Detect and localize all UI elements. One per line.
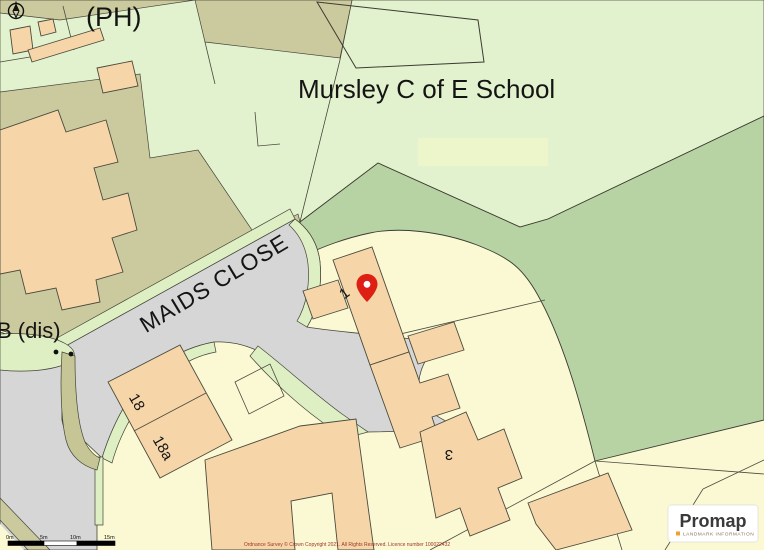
promap-map-view: (PH) Mursley C of E School MAIDS CLOSE B… <box>0 0 764 550</box>
logo-brand-text: Promap <box>679 511 746 531</box>
scale-tick: 10m <box>70 535 81 541</box>
label-telephone-disused: B (dis) <box>0 318 61 343</box>
logo-bullet-icon <box>676 532 680 536</box>
scale-tick: 0m <box>6 535 14 541</box>
map-point-dot <box>54 350 59 355</box>
faint-highlight-area <box>418 138 548 166</box>
scale-tick: 5m <box>40 535 48 541</box>
promap-logo: Promap LANDMARK INFORMATION <box>668 505 758 542</box>
label-plot-3: 3 <box>445 446 453 463</box>
label-school: Mursley C of E School <box>298 74 555 104</box>
scale-tick: 15m <box>104 535 115 541</box>
map-point-dot <box>69 352 74 357</box>
label-public-house: (PH) <box>86 2 142 32</box>
logo-tagline-text: LANDMARK INFORMATION <box>683 532 754 538</box>
map-canvas: (PH) Mursley C of E School MAIDS CLOSE B… <box>0 0 764 550</box>
copyright-attribution: Ordnance Survey © Crown Copyright 2021. … <box>244 541 451 548</box>
